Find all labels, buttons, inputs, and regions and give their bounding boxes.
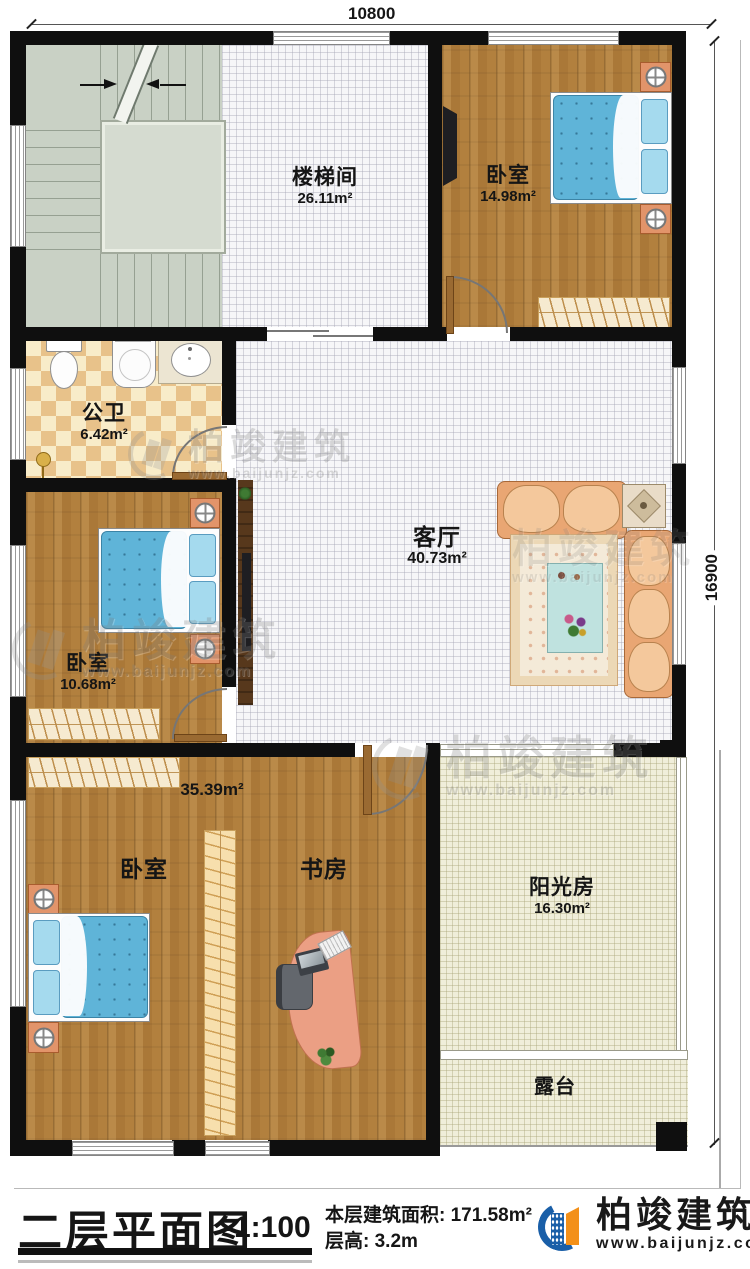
floor-area-line: 本层建筑面积: 171.58m² (325, 1203, 532, 1229)
window (273, 31, 390, 45)
wall-segment (672, 663, 686, 745)
sunroom-window (676, 757, 687, 1054)
wall-segment (426, 743, 440, 1155)
brand-name: 柏竣建筑 (596, 1197, 750, 1233)
wall-pillar (656, 1122, 687, 1151)
nightstand (190, 634, 220, 664)
end-table (622, 484, 666, 528)
room-label-bedroom-top-right: 卧室 14.98m² (480, 164, 536, 205)
wall-segment (10, 327, 267, 341)
sink-counter (158, 336, 224, 384)
sofa-top (497, 481, 627, 539)
title-underline-thin (18, 1260, 312, 1263)
stair-arrow-line-right (160, 84, 186, 86)
wall-segment (428, 31, 442, 341)
lamp-icon (195, 639, 216, 660)
dimension-line-top (30, 24, 712, 25)
brand-website: www.baijunjz.com (596, 1236, 750, 1252)
window (488, 31, 619, 45)
lamp-icon (33, 889, 54, 910)
nightstand (640, 62, 671, 92)
window (10, 368, 26, 460)
sunroom-window (440, 1050, 688, 1060)
rug (510, 534, 618, 686)
dimension-top-value: 10800 (344, 4, 399, 24)
page-frame-right (740, 40, 741, 1188)
coffee-table (547, 563, 603, 653)
wall-segment (10, 478, 236, 492)
bed (550, 92, 672, 204)
sofa-right (624, 530, 674, 698)
brand-logo-icon (538, 1203, 586, 1251)
lamp-icon (645, 67, 666, 88)
wall-segment (672, 462, 686, 543)
wall-segment (268, 1140, 440, 1156)
wall-segment (672, 31, 686, 367)
plant-icon (316, 1046, 336, 1066)
tv-icon (242, 553, 251, 651)
room-divider-screen (204, 830, 236, 1136)
stair-arrow-right (146, 79, 159, 89)
room-label-bathroom: 公卫 6.42m² (80, 402, 128, 443)
dimension-right-value: 16900 (702, 550, 722, 605)
wall-segment (10, 743, 355, 757)
room-label-study: 书房 (300, 856, 348, 882)
room-label-terrace: 露台 (534, 1076, 576, 1099)
wall-segment (10, 245, 26, 368)
room-label-suite-bedroom: 卧室 (120, 856, 168, 882)
wardrobe (28, 757, 180, 788)
window (672, 543, 686, 665)
stair-treads-left (26, 122, 102, 250)
drawing-info: 本层建筑面积: 171.58m² 层高: 3.2m (325, 1203, 532, 1254)
window (72, 1141, 174, 1156)
room-label-bedroom-left: 卧室 10.68m² (60, 652, 116, 693)
suite-area-label: 35.39m² (180, 780, 243, 800)
floor-plan-page: 楼梯间 26.11m² 卧室 14.98m² 公卫 6.42m² 客厅 40.7… (0, 0, 750, 1269)
flowers-icon (560, 610, 590, 640)
brand-logo: 柏竣建筑 www.baijunjz.com (538, 1197, 750, 1252)
drawing-scale: 1:100 (234, 1211, 311, 1245)
plant-icon (239, 487, 251, 500)
wall-segment (10, 1140, 72, 1156)
door-leaf (446, 276, 454, 334)
wardrobe (538, 297, 670, 328)
sliding-door (267, 330, 329, 332)
window (10, 125, 26, 247)
sunroom-window (440, 744, 614, 757)
terrace-railing (719, 750, 721, 1188)
bed (98, 528, 220, 633)
floor-height-line: 层高: 3.2m (325, 1229, 532, 1255)
nightstand (28, 1022, 59, 1053)
nightstand (28, 884, 59, 914)
bed (28, 913, 150, 1022)
wall-segment (10, 1005, 26, 1155)
window (672, 367, 686, 464)
door-leaf (363, 745, 372, 815)
wardrobe (28, 708, 160, 740)
page-frame-bottom (14, 1188, 741, 1189)
door-leaf (172, 472, 227, 480)
window (10, 800, 26, 1007)
toilet-icon (46, 337, 80, 389)
room-label-sunroom: 阳光房 16.30m² (529, 876, 595, 917)
door-leaf (174, 734, 227, 742)
lamp-icon (33, 1027, 54, 1048)
washing-machine-icon (112, 336, 156, 388)
stair-arrow-line-left (80, 84, 106, 86)
wall-segment (10, 31, 26, 125)
wall-segment (510, 327, 686, 341)
stair-treads-down (100, 248, 222, 327)
stair-landing (100, 120, 226, 254)
terrace-railing (440, 1145, 688, 1147)
sliding-door (313, 335, 373, 337)
terrace-floor (440, 1058, 688, 1146)
wall-segment (222, 341, 236, 425)
nightstand (640, 204, 671, 234)
nightstand (190, 498, 220, 528)
tv-icon (443, 106, 457, 186)
wall-segment (172, 1140, 205, 1156)
wall-segment (10, 458, 26, 545)
title-underline (18, 1248, 312, 1255)
window (10, 545, 26, 697)
wall-segment (10, 31, 273, 45)
lamp-icon (645, 209, 666, 230)
stair-arrow-left (104, 79, 117, 89)
window (205, 1141, 270, 1156)
lamp-icon (195, 503, 216, 524)
room-label-living: 客厅 40.73m² (407, 524, 467, 569)
wall-pillar (660, 740, 686, 757)
room-label-stairwell: 楼梯间 26.11m² (292, 166, 358, 207)
tv-cabinet (238, 480, 253, 705)
wall-segment (222, 478, 236, 687)
